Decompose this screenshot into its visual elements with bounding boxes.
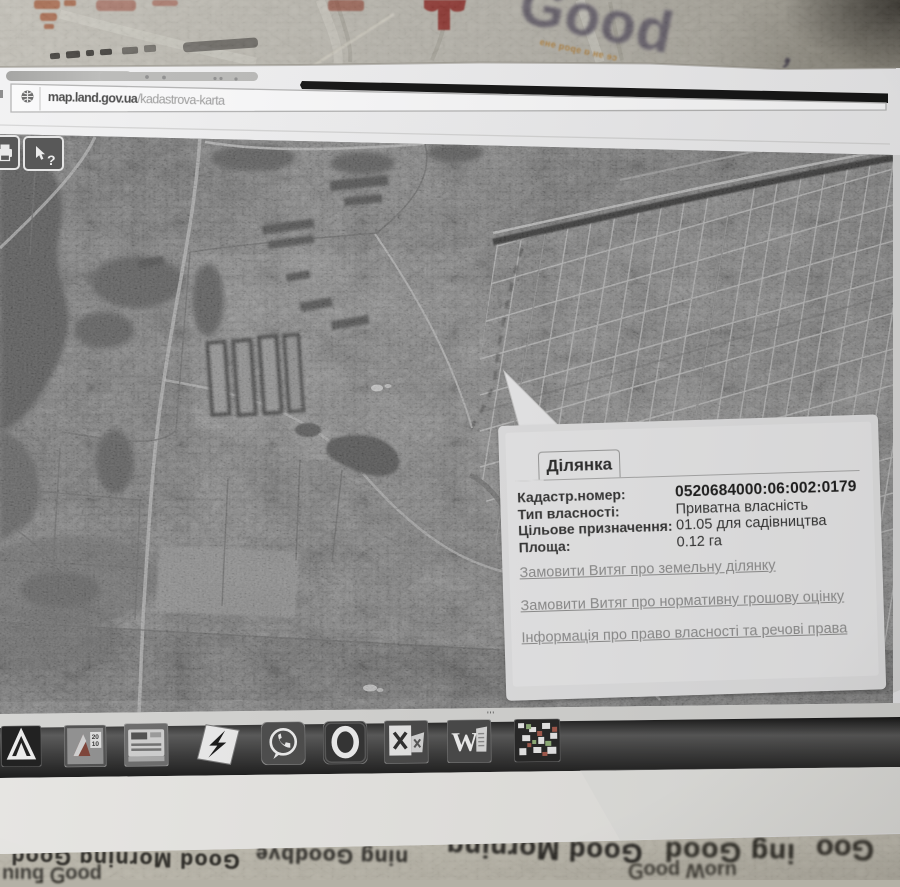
svg-text:10: 10 [92,741,100,748]
svg-text:W: W [451,727,478,757]
